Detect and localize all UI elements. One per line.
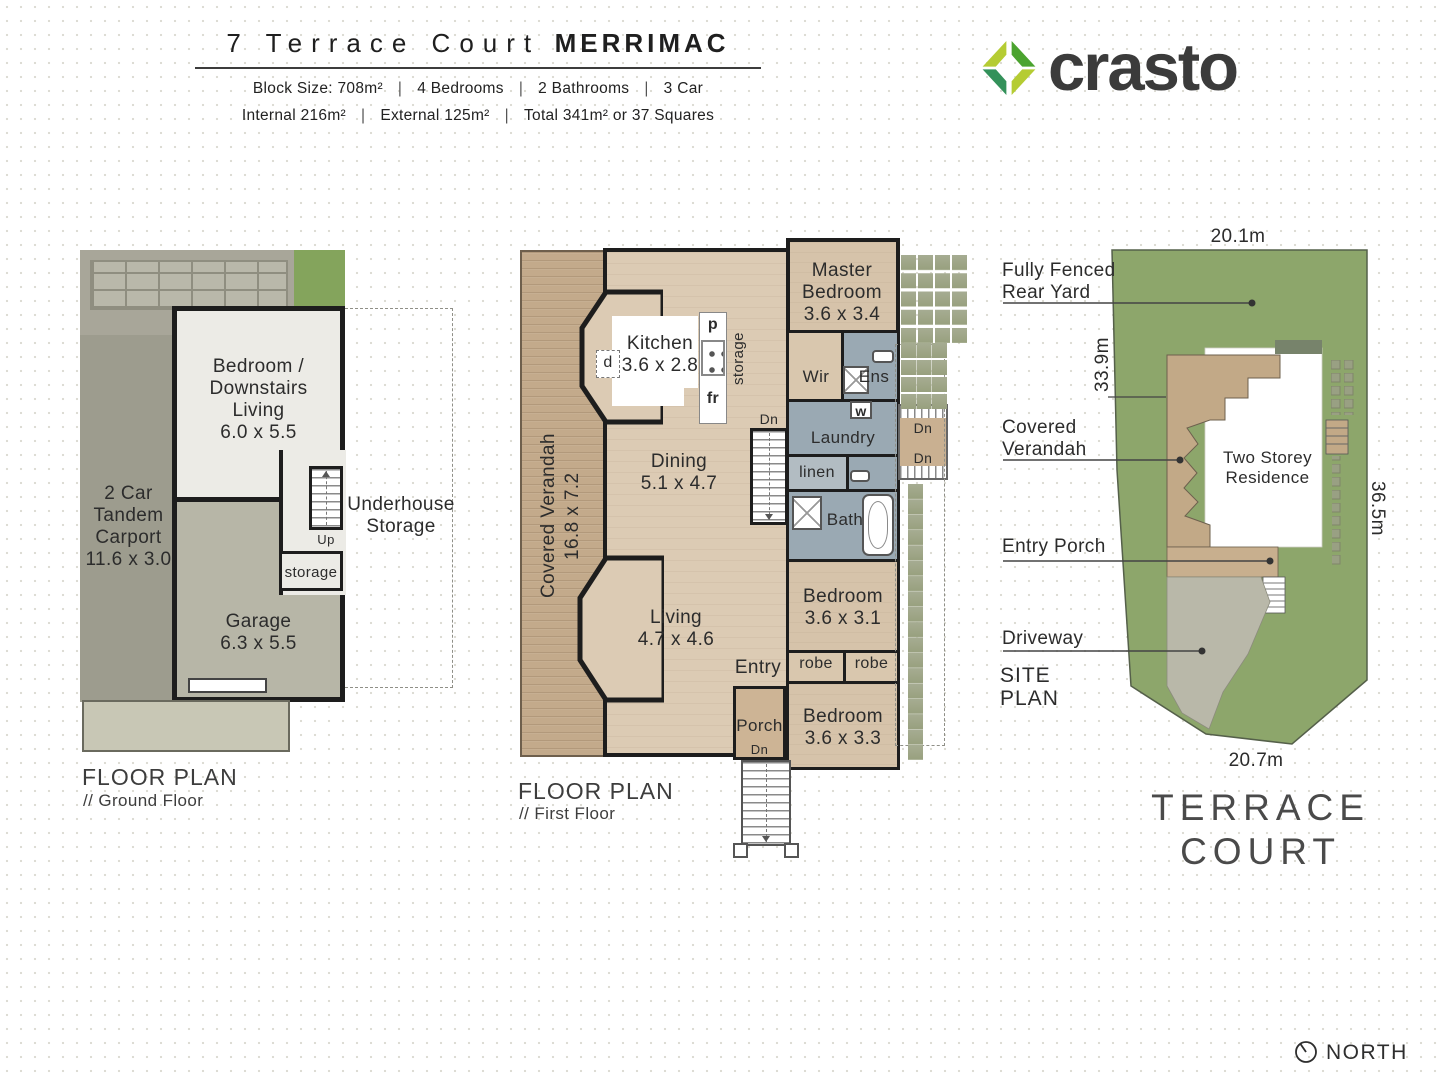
- stair-post-left: [733, 843, 748, 858]
- verandah-label: Covered Verandah: [538, 418, 562, 614]
- kitchen-dims: 3.6 x 2.8: [590, 355, 730, 377]
- carport-pergola-grid: [90, 260, 288, 310]
- linen-label: linen: [786, 464, 848, 483]
- carport-line: Carport: [80, 527, 177, 549]
- ground-floor-plan-title: FLOOR PLAN: [82, 764, 342, 791]
- pantry-label: p: [699, 316, 727, 335]
- carport-dims: 11.6 x 3.0: [80, 549, 177, 571]
- bedroom3-dims: 3.6 x 3.3: [786, 728, 900, 750]
- spec-bedrooms: 4 Bedrooms: [417, 80, 504, 98]
- pavers-path-column: [908, 484, 925, 760]
- bedroom2-line: Bedroom: [786, 586, 900, 608]
- page-title: 7 Terrace Court MERRIMAC: [160, 28, 796, 59]
- crasto-logo: crasto: [976, 34, 1237, 101]
- room-label-bedroom-3: Bedroom 3.6 x 3.3: [786, 706, 900, 750]
- robe-label-1: robe: [786, 655, 846, 674]
- carport-line: Tandem: [80, 505, 177, 527]
- bedroom-dims: 6.0 x 5.5: [172, 422, 345, 444]
- first-floor-plan-title: FLOOR PLAN: [518, 778, 778, 805]
- street-name: TERRACE COURT: [1128, 786, 1393, 875]
- rear-yard-line: Rear Yard: [1002, 282, 1162, 304]
- room-label-downstairs-bedroom: Bedroom / Downstairs Living 6.0 x 5.5: [172, 356, 345, 444]
- site-dim-right: 36.5m: [1362, 468, 1388, 548]
- verandah-line: Covered: [1002, 417, 1162, 439]
- underhouse-line: Underhouse: [345, 494, 457, 516]
- site-plan-title-line: SITE: [1000, 664, 1120, 687]
- stair-centerline: [326, 471, 327, 525]
- room-label-carport: 2 Car Tandem Carport 11.6 x 3.0: [80, 483, 177, 571]
- bedroom3-line: Bedroom: [786, 706, 900, 728]
- label-driveway: Driveway: [1002, 628, 1162, 650]
- ensuite-toilet: [872, 350, 894, 363]
- garage-door: [188, 678, 267, 693]
- storage-label: storage: [279, 564, 343, 581]
- residence-line: Residence: [1205, 468, 1330, 488]
- driveway-apron: [82, 700, 290, 752]
- dining-line: Dining: [609, 451, 749, 473]
- room-label-living: Living 4.7 x 4.6: [606, 607, 746, 651]
- living-line: Living: [606, 607, 746, 629]
- room-label-bedroom-2: Bedroom 3.6 x 3.1: [786, 586, 900, 630]
- spec-car: 3 Car: [664, 80, 703, 98]
- site-plan-title-line: PLAN: [1000, 687, 1120, 710]
- room-label-kitchen: Kitchen 3.6 x 2.8: [590, 333, 730, 377]
- label-covered-verandah: Covered Verandah: [1002, 417, 1162, 461]
- spec-total: Total 341m² or 37 Squares: [524, 107, 714, 125]
- dn-label-internal: Dn: [749, 411, 789, 427]
- stair-down-arrow: [762, 836, 770, 842]
- pavers-upper-grid: [901, 255, 967, 343]
- kitchen-island: [612, 386, 684, 406]
- room-wir: [786, 330, 844, 402]
- specs-line-2: Internal 216m² | External 125m² | Total …: [160, 107, 796, 125]
- label-rear-yard: Fully Fenced Rear Yard: [1002, 260, 1162, 304]
- garage-line: Garage: [172, 611, 345, 633]
- stairs-down-internal: [750, 428, 788, 525]
- spec-bathrooms: 2 Bathrooms: [538, 80, 629, 98]
- residence-line: Two Storey: [1205, 448, 1330, 468]
- specs-line-1: Block Size: 708m² | 4 Bedrooms | 2 Bathr…: [160, 80, 796, 98]
- bedroom-line: Downstairs: [172, 378, 345, 400]
- verandah-dims: 16.8 x 7.2: [562, 446, 584, 586]
- address-text: 7 Terrace Court: [226, 28, 540, 58]
- stair-post-right: [784, 843, 799, 858]
- stair-down-arrow: [765, 514, 773, 520]
- label-entry-porch: Entry Porch: [1002, 536, 1162, 558]
- street-name-line: COURT: [1128, 830, 1393, 874]
- suburb-text: MERRIMAC: [555, 28, 730, 58]
- kitchen-line: Kitchen: [590, 333, 730, 355]
- site-dim-bottom: 20.7m: [1206, 750, 1306, 772]
- dn-label-porch: Dn: [733, 742, 786, 757]
- crasto-logo-text: crasto: [1048, 34, 1237, 101]
- porch-label: Porch: [733, 716, 786, 736]
- garage-dims: 6.3 x 5.5: [172, 633, 345, 655]
- site-dim-top: 20.1m: [1188, 226, 1288, 248]
- pipe-separator: |: [361, 107, 365, 125]
- label-residence: Two Storey Residence: [1205, 448, 1330, 487]
- crasto-logo-icon: [976, 35, 1042, 101]
- pipe-separator: |: [505, 107, 509, 125]
- north-label: NORTH: [1326, 1041, 1416, 1065]
- site-pavers-path: [1332, 456, 1343, 568]
- bath-label: Bath: [810, 510, 880, 530]
- underhouse-storage-label: Underhouse Storage: [345, 494, 457, 538]
- site-dim-left: 33.9m: [1092, 330, 1116, 400]
- kitchen-storage-label: storage: [730, 318, 750, 400]
- spec-block-size: Block Size: 708m²: [253, 80, 383, 98]
- room-label-master: Master Bedroom 3.6 x 3.4: [784, 260, 900, 326]
- site-plan-title: SITE PLAN: [1000, 664, 1120, 710]
- floorplan-sheet: 7 Terrace Court MERRIMAC Block Size: 708…: [0, 0, 1440, 1080]
- hall-toilet: [850, 470, 870, 482]
- site-entry-porch: [1167, 547, 1278, 577]
- bedroom2-dims: 3.6 x 3.1: [786, 608, 900, 630]
- stair-up-arrow: [322, 471, 330, 477]
- living-dims: 4.7 x 4.6: [606, 629, 746, 651]
- site-pavers-upper: [1329, 357, 1356, 415]
- bedroom-line: Bedroom /: [172, 356, 345, 378]
- ground-floor-plan-subtitle: // Ground Floor: [83, 791, 343, 811]
- carport-line: 2 Car: [80, 483, 177, 505]
- stairs-up: [309, 466, 343, 530]
- fridge-label: fr: [699, 390, 727, 409]
- verandah-line: Verandah: [1002, 439, 1162, 461]
- entry-label: Entry: [727, 657, 789, 679]
- bedroom-line: Living: [172, 400, 345, 422]
- house-roof-patch: [1275, 340, 1322, 354]
- wir-label: Wir: [794, 367, 838, 387]
- up-label: Up: [307, 532, 345, 547]
- first-floor-plan-subtitle: // First Floor: [519, 804, 779, 824]
- master-line: Bedroom: [784, 282, 900, 304]
- pipe-separator: |: [398, 80, 402, 98]
- laundry-label: Laundry: [790, 428, 896, 448]
- washer-label: w: [850, 403, 872, 419]
- pipe-separator: |: [519, 80, 523, 98]
- robe-label-2: robe: [843, 655, 900, 674]
- grass-patch: [294, 250, 345, 310]
- rear-yard-line: Fully Fenced: [1002, 260, 1162, 282]
- master-line: Master: [784, 260, 900, 282]
- room-label-garage: Garage 6.3 x 5.5: [172, 611, 345, 655]
- north-compass-icon: [1294, 1040, 1320, 1066]
- spec-internal: Internal 216m²: [242, 107, 346, 125]
- stair-centerline: [769, 433, 770, 520]
- spec-external: External 125m²: [380, 107, 489, 125]
- ens-label: Ens: [852, 367, 896, 387]
- street-name-line: TERRACE: [1128, 786, 1393, 830]
- title-divider: [195, 67, 761, 69]
- room-label-dining: Dining 5.1 x 4.7: [609, 451, 749, 495]
- master-dims: 3.6 x 3.4: [784, 304, 900, 326]
- pipe-separator: |: [644, 80, 648, 98]
- underhouse-line: Storage: [345, 516, 457, 538]
- dining-dims: 5.1 x 4.7: [609, 473, 749, 495]
- pavers-mid-grid: [901, 343, 947, 409]
